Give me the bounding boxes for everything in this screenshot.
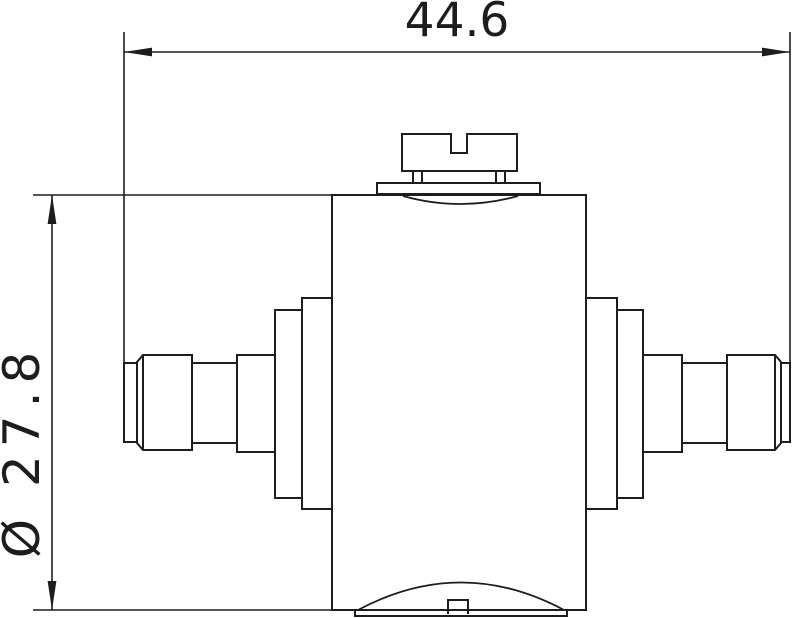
bottom-foot-plate xyxy=(355,610,567,616)
right-large-flange xyxy=(586,298,617,509)
right-step xyxy=(643,355,682,452)
right-port xyxy=(586,298,790,509)
left-large-flange xyxy=(302,298,332,509)
right-mid-flange xyxy=(617,310,643,498)
main-body xyxy=(332,195,586,610)
left-barrel xyxy=(192,363,237,443)
left-mid-flange xyxy=(275,310,302,498)
left-step xyxy=(237,355,275,452)
top-adjustment-screw xyxy=(377,134,540,204)
screw-head-with-slot xyxy=(402,134,517,171)
left-port xyxy=(124,298,332,509)
right-connector-end xyxy=(781,363,790,442)
arrowhead-left-icon xyxy=(124,48,152,57)
right-barrel xyxy=(682,363,727,443)
body-diameter-label: Ø 27.8 xyxy=(0,344,51,559)
arrowhead-up-icon xyxy=(48,195,57,224)
arrowhead-down-icon xyxy=(48,581,57,610)
screw-flange-plate xyxy=(377,183,540,194)
left-hex-nut xyxy=(137,355,192,450)
drawing-page: 44.6 Ø 27.8 xyxy=(0,0,794,618)
left-connector-end xyxy=(124,363,137,442)
overall-length-label: 44.6 xyxy=(405,0,510,48)
right-hex-nut xyxy=(727,355,781,450)
arrowhead-right-icon xyxy=(762,48,790,57)
technical-drawing-canvas: 44.6 Ø 27.8 xyxy=(0,0,794,618)
